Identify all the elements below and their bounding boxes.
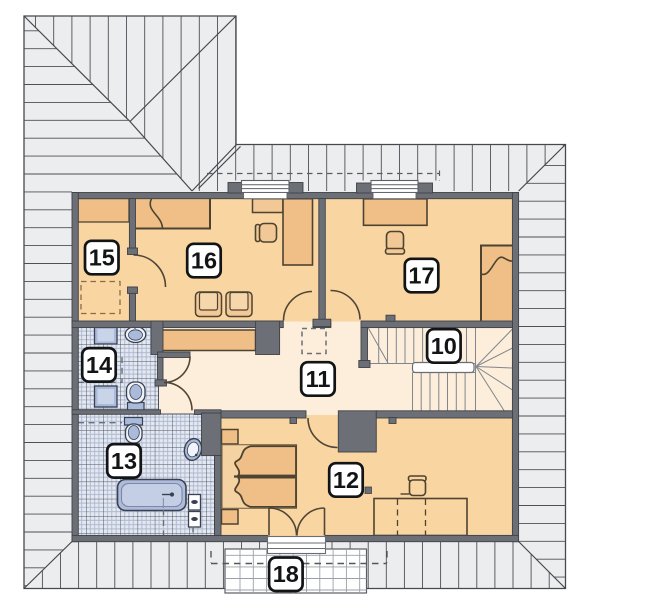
svg-text:16: 16 [191,248,217,274]
svg-text:13: 13 [111,448,137,474]
svg-text:12: 12 [333,467,359,493]
svg-text:15: 15 [89,245,115,271]
svg-text:14: 14 [86,352,112,378]
svg-text:17: 17 [408,263,434,289]
svg-text:10: 10 [431,333,457,359]
svg-text:11: 11 [306,366,331,392]
svg-text:18: 18 [273,561,299,587]
